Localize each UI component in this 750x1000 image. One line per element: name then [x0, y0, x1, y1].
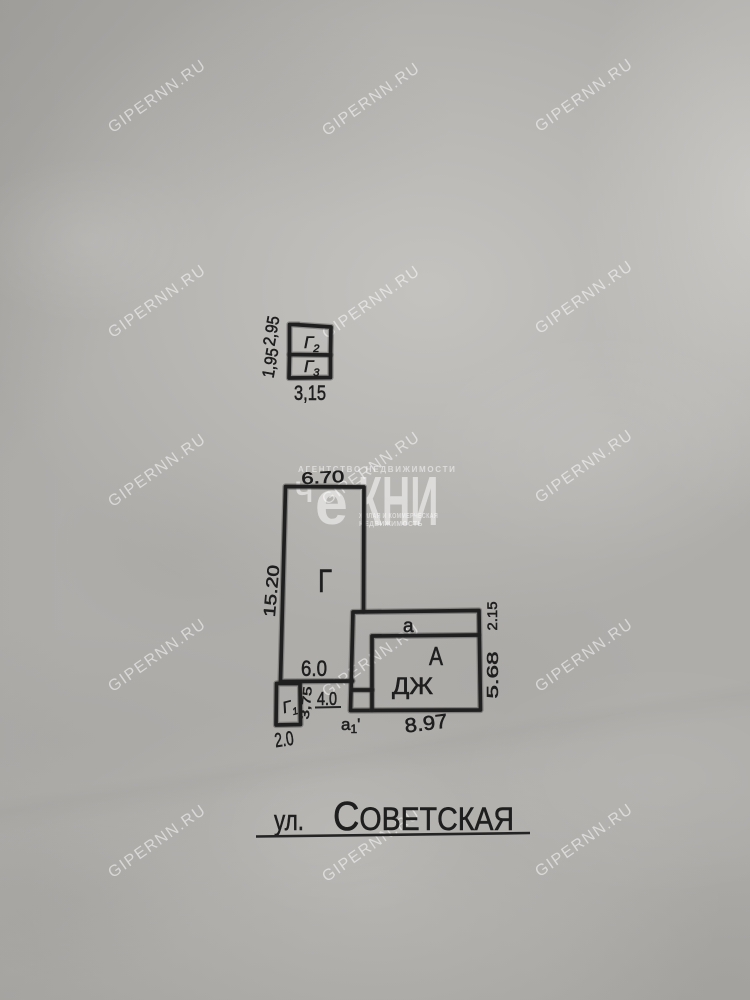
- svg-text:3,15: 3,15: [294, 382, 326, 405]
- svg-text:3,75: 3,75: [298, 685, 315, 720]
- svg-text:Г2: Г2: [304, 333, 319, 355]
- svg-text:6.70: 6.70: [301, 468, 345, 488]
- svg-text:ул.: ул.: [274, 805, 304, 837]
- svg-text:Г3: Г3: [304, 357, 320, 379]
- svg-text:6.0: 6.0: [301, 656, 327, 681]
- svg-text:СОВЕТСКАЯ: СОВЕТСКАЯ: [333, 793, 514, 839]
- svg-text:5.68: 5.68: [485, 651, 502, 698]
- svg-text:2.0: 2.0: [273, 728, 295, 752]
- svg-text:Г: Г: [318, 563, 332, 599]
- svg-text:а: а: [403, 616, 414, 637]
- svg-text:Г1: Г1: [281, 697, 300, 720]
- svg-text:1,95: 1,95: [259, 346, 283, 379]
- svg-text:А: А: [429, 641, 444, 671]
- svg-text:8.97: 8.97: [403, 710, 448, 737]
- svg-text:ДЖ: ДЖ: [392, 673, 433, 700]
- svg-text:2.15: 2.15: [484, 601, 500, 630]
- svg-text:а1': а1': [341, 715, 360, 736]
- svg-text:4.0: 4.0: [317, 689, 337, 709]
- svg-text:2,95: 2,95: [260, 314, 284, 347]
